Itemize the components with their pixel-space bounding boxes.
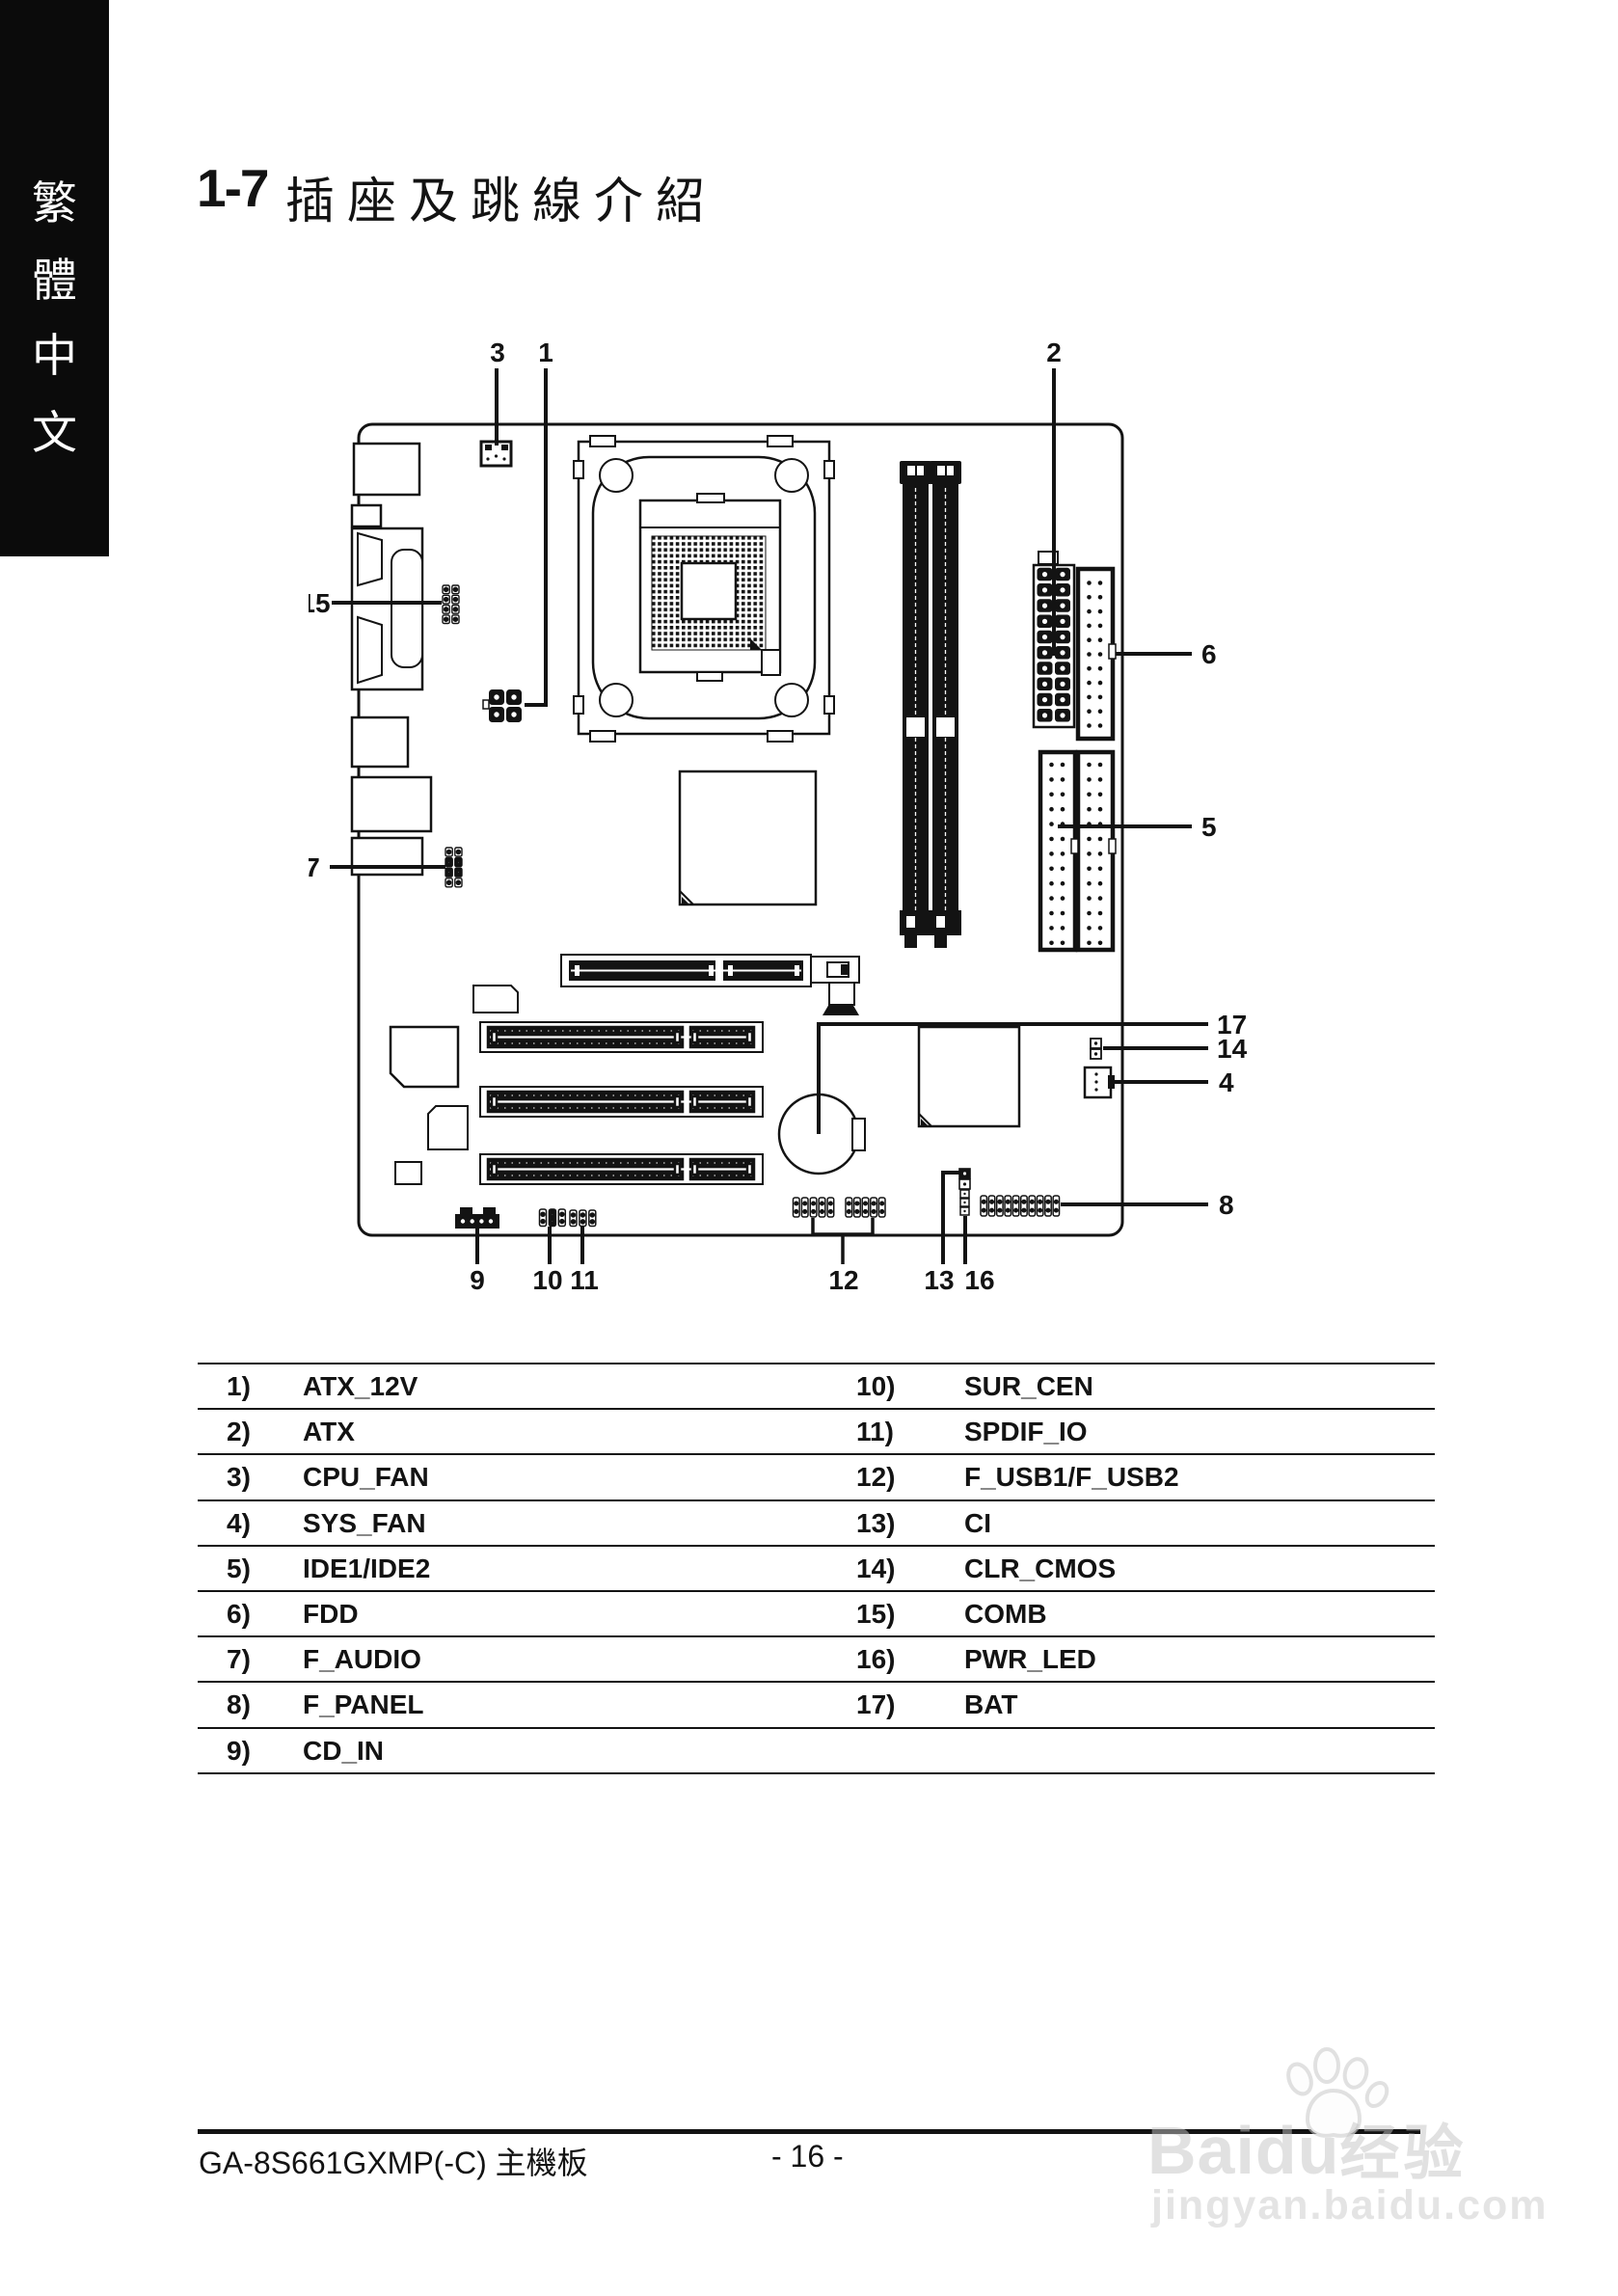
connector-name: BAT xyxy=(964,1683,1017,1727)
watermark-brand: Baidu经验 xyxy=(1147,2104,1467,2191)
row-number: 2) xyxy=(227,1410,251,1454)
callout-label-comb: 15 xyxy=(309,588,331,618)
callout-label-atx-12v: 1 xyxy=(538,338,553,367)
callout-label-ci: 13 xyxy=(924,1265,954,1295)
fdd-key-notch xyxy=(1109,644,1116,659)
row-number: 6) xyxy=(227,1592,251,1636)
connector-name: SYS_FAN xyxy=(303,1501,426,1546)
ci-header xyxy=(959,1169,970,1189)
connector-name: F_USB1/F_USB2 xyxy=(964,1455,1179,1499)
callout-label-fdd: 6 xyxy=(1201,639,1217,669)
model-suffix: 主機板 xyxy=(496,2145,588,2181)
watermark: Baidu经验 jingyan.baidu.com xyxy=(1138,2044,1591,2266)
page-title: 插座及跳線介紹 xyxy=(285,161,717,232)
connector-name: CI xyxy=(964,1501,991,1546)
row-number: 5) xyxy=(227,1547,251,1591)
sidebar-char: 繁 xyxy=(0,166,109,232)
fdd-connector xyxy=(1078,569,1113,739)
f-usb2-header xyxy=(846,1198,885,1217)
callout-label-atx: 2 xyxy=(1046,338,1062,367)
callout-label-spdif-io: 11 xyxy=(570,1265,599,1295)
row-number: 3) xyxy=(227,1455,251,1499)
callout-label-clr-cmos: 14 xyxy=(1217,1034,1248,1064)
watermark-url: jingyan.baidu.com xyxy=(1151,2182,1549,2229)
connector-name: PWR_LED xyxy=(964,1637,1096,1682)
connector-name: F_AUDIO xyxy=(303,1637,421,1682)
connector-name: COMB xyxy=(964,1592,1047,1636)
connector-name: CD_IN xyxy=(303,1729,384,1773)
row-number: 10) xyxy=(856,1364,895,1409)
connector-name: FDD xyxy=(303,1592,359,1636)
callout-label-f-panel: 8 xyxy=(1219,1190,1234,1220)
connector-name: IDE1/IDE2 xyxy=(303,1547,430,1591)
callout-label-pwr-led: 16 xyxy=(964,1265,994,1295)
sidebar-char: 體 xyxy=(0,243,109,310)
table-row: 5)IDE1/IDE2 14)CLR_CMOS xyxy=(198,1545,1435,1590)
section-number: 1-7 xyxy=(197,157,268,219)
spdif-io-header xyxy=(570,1210,596,1227)
connector-table: 1)ATX_12V 10)SUR_CEN 2)ATX 11)SPDIF_IO 3… xyxy=(198,1363,1435,1774)
callout-label-sur-cen: 10 xyxy=(532,1265,562,1295)
pci-slots xyxy=(480,1022,763,1184)
sys-fan-connector xyxy=(1085,1067,1115,1097)
row-number: 8) xyxy=(227,1683,251,1727)
language-sidebar: 繁 體 中 文 xyxy=(0,0,109,556)
ide2-key-notch xyxy=(1109,839,1116,853)
page-number: - 16 - xyxy=(771,2139,844,2174)
callout-label-ide: 5 xyxy=(1201,812,1217,842)
row-number: 11) xyxy=(856,1410,894,1454)
table-row: 7)F_AUDIO 16)PWR_LED xyxy=(198,1635,1435,1681)
pwr-led-header xyxy=(960,1190,969,1215)
row-number: 4) xyxy=(227,1501,251,1546)
row-number: 7) xyxy=(227,1637,251,1682)
row-number: 13) xyxy=(856,1501,895,1546)
table-row: 4)SYS_FAN 13)CI xyxy=(198,1499,1435,1545)
row-number: 12) xyxy=(856,1455,895,1499)
callout-label-f-audio: 7 xyxy=(309,852,320,882)
table-row: 2)ATX 11)SPDIF_IO xyxy=(198,1408,1435,1453)
ide1-key-notch xyxy=(1071,839,1078,853)
model-number: GA-8S661GXMP(-C) xyxy=(199,2146,487,2180)
motherboard-diagram: 3 1 2 15 7 6 5 17 14 4 8 9 10 11 12 13 1… xyxy=(309,309,1292,1311)
row-number: 16) xyxy=(856,1637,895,1682)
connector-name: ATX xyxy=(303,1410,355,1454)
table-row: 9)CD_IN xyxy=(198,1727,1435,1772)
row-number: 1) xyxy=(227,1364,251,1409)
row-number: 17) xyxy=(856,1683,895,1727)
connector-name: ATX_12V xyxy=(303,1364,418,1409)
connector-name: F_PANEL xyxy=(303,1683,424,1727)
manual-page: 繁 體 中 文 1-7 插座及跳線介紹 xyxy=(0,0,1618,2296)
sidebar-char: 文 xyxy=(0,395,109,462)
connector-name: SUR_CEN xyxy=(964,1364,1093,1409)
footer-model: GA-8S661GXMP(-C) 主機板 xyxy=(199,2139,588,2183)
row-number: 9) xyxy=(227,1729,251,1773)
clr-cmos-jumper xyxy=(1091,1039,1101,1059)
connector-name: CLR_CMOS xyxy=(964,1547,1116,1591)
sur-cen-header xyxy=(540,1209,566,1227)
callout-label-cpu-fan: 3 xyxy=(490,338,505,367)
cpu-socket xyxy=(574,436,834,742)
northbridge-chip xyxy=(680,771,816,905)
row-number: 14) xyxy=(856,1547,895,1591)
row-number: 15) xyxy=(856,1592,895,1636)
callout-label-sys-fan: 4 xyxy=(1219,1067,1234,1097)
southbridge-chip xyxy=(919,1027,1019,1126)
connector-name: CPU_FAN xyxy=(303,1455,429,1499)
f-usb1-header xyxy=(794,1198,834,1217)
callout-label-cd-in: 9 xyxy=(470,1265,485,1295)
sidebar-char: 中 xyxy=(0,318,109,385)
callout-label-f-usb: 12 xyxy=(828,1265,858,1295)
table-row: 6)FDD 15)COMB xyxy=(198,1590,1435,1635)
connector-name: SPDIF_IO xyxy=(964,1410,1088,1454)
table-row: 1)ATX_12V 10)SUR_CEN xyxy=(198,1363,1435,1408)
table-row: 3)CPU_FAN 12)F_USB1/F_USB2 xyxy=(198,1453,1435,1499)
table-row: 8)F_PANEL 17)BAT xyxy=(198,1681,1435,1726)
